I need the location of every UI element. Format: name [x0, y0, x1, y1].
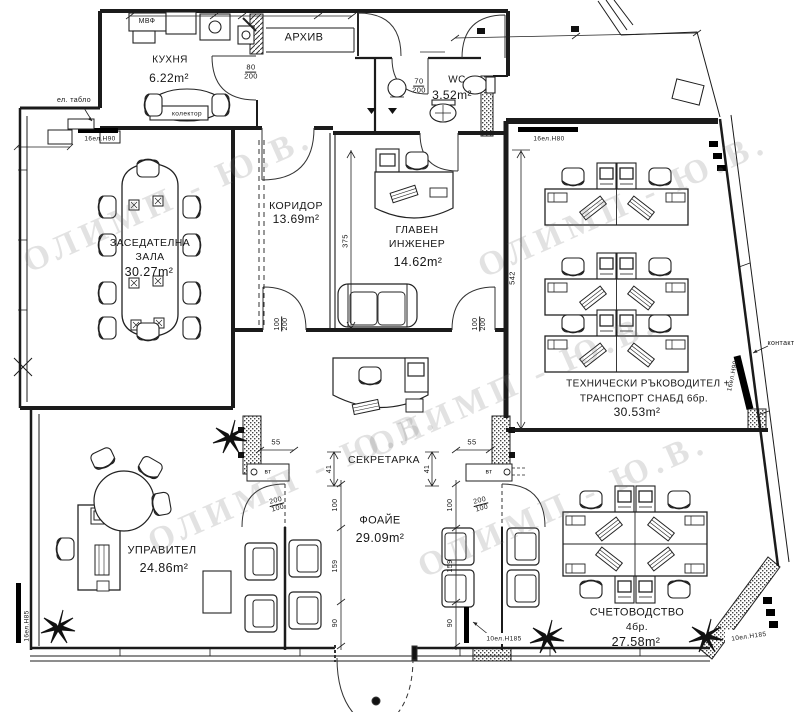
strip-label-top-right: 16ел.H80	[533, 135, 564, 142]
area-label-accounting: 27.58m²	[612, 635, 661, 649]
room-label-meeting-2: ЗАЛА	[135, 251, 164, 263]
dim-foyer-left-90: 90	[332, 619, 340, 628]
dim-foyer-right-100: 100	[447, 499, 455, 512]
vt-label-right: вт	[485, 468, 492, 475]
floor-plan-drawing	[0, 0, 800, 712]
room-label-foyer: ФОАЙЕ	[359, 515, 400, 528]
area-label-manager: 24.86m²	[140, 561, 189, 575]
room-label-wc: WC	[448, 74, 465, 86]
area-label-tech: 30.53m²	[614, 406, 661, 420]
strip-label-left-wall: 16ел.H85	[23, 610, 30, 641]
room-label-accounting: СЧЕТОВОДСТВО	[590, 607, 684, 620]
door-size-chief-right: 100 200	[472, 317, 488, 332]
door-size-corridor-left: 100 200	[274, 317, 290, 332]
room-label-archive: АРХИВ	[285, 32, 324, 45]
strip-label-top-left: 16ел.H90	[84, 135, 115, 142]
room-label-chief-1: ГЛАВЕН	[396, 224, 439, 236]
dim-foyer-left-159: 159	[332, 560, 340, 573]
door-size-kitchen: 80 200	[244, 64, 258, 81]
area-label-foyer: 29.09m²	[356, 531, 405, 545]
mvf-label: МВФ	[139, 18, 156, 26]
strip-label-foyer: 10ел.H185	[486, 635, 521, 642]
area-label-wc: 3.52m²	[432, 89, 472, 103]
wc-fixtures	[367, 52, 495, 122]
area-label-chief: 14.62m²	[394, 255, 443, 269]
dim-sec-right: 41	[424, 465, 432, 474]
door-size-wc: 70 200	[412, 78, 426, 95]
contact-label: контакт	[767, 340, 794, 348]
floor-plan: МВФ КУХНЯ 6.22m² колектор АРХИВ 80 200 W…	[0, 0, 800, 712]
room-label-kitchen: КУХНЯ	[152, 54, 187, 66]
count-label-accounting: 4бр.	[626, 621, 648, 633]
room-label-chief-2: ИНЖЕНЕР	[389, 238, 445, 250]
dim-col-left: 55	[271, 439, 280, 448]
dim-foyer-left-100: 100	[332, 499, 340, 512]
dim-chief-depth: 375	[342, 234, 351, 248]
area-label-corridor: 13.69m²	[273, 213, 320, 227]
room-label-corridor: КОРИДОР	[269, 200, 323, 212]
room-label-tech-2: ТРАНСПОРТ СНАБД 6бр.	[580, 393, 708, 405]
area-label-meeting: 30.27m²	[125, 265, 174, 279]
collector-label: колектор	[172, 110, 202, 117]
area-label-kitchen: 6.22m²	[149, 72, 189, 86]
room-label-tech-1: ТЕХНИЧЕСКИ РЪКОВОДИТЕЛ +	[566, 378, 730, 390]
dim-col-right: 55	[467, 439, 476, 448]
electrical-panel-label: ел. табло	[57, 97, 91, 105]
dim-foyer-right-90: 90	[447, 619, 455, 628]
